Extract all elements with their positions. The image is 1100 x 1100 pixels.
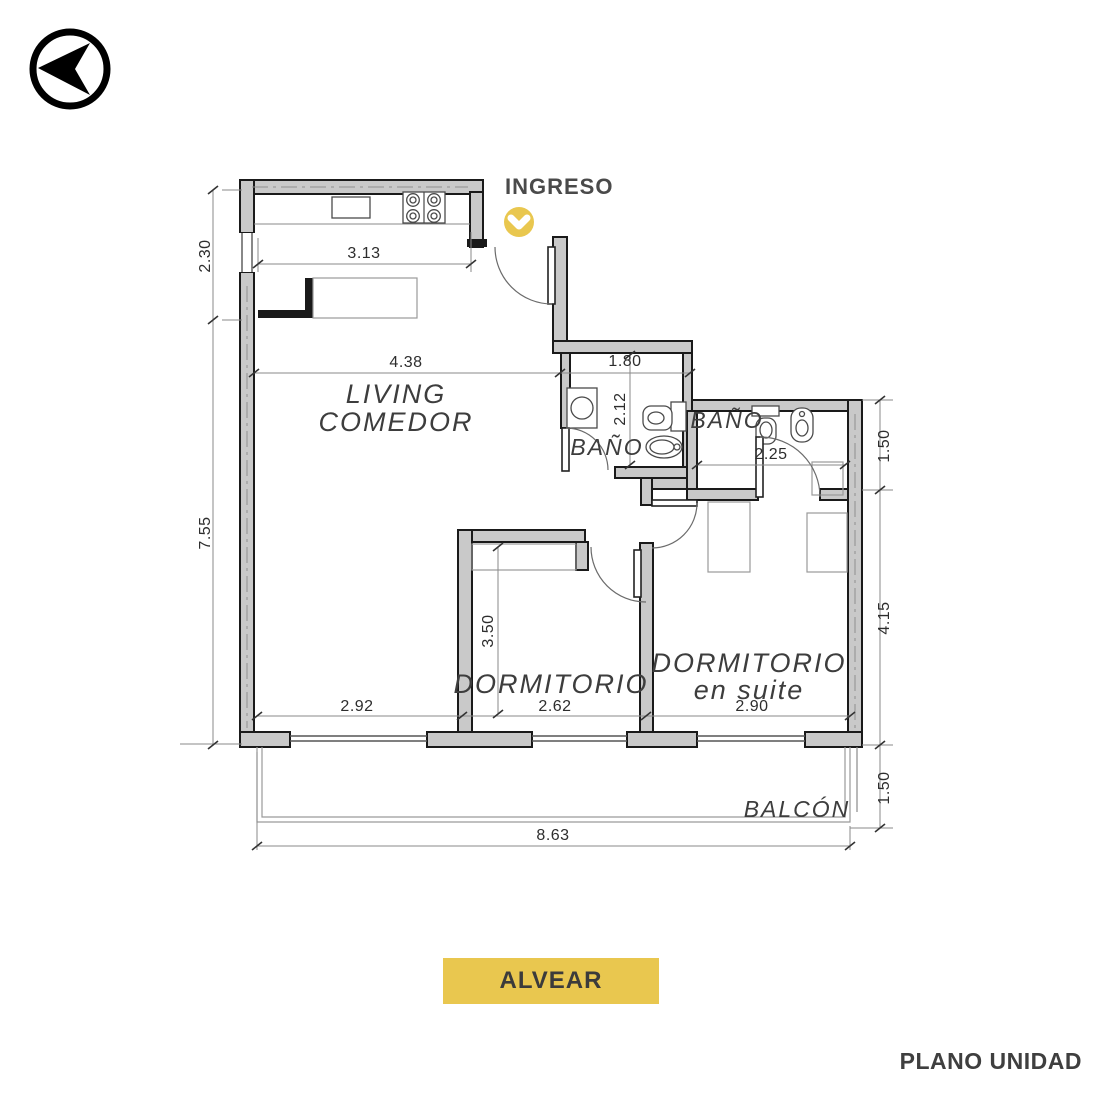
dim-bedroom1-depth: 3.50 bbox=[480, 614, 497, 647]
bedroom1-label: DORMITORIO bbox=[454, 669, 649, 699]
north-arrow-icon bbox=[33, 32, 107, 106]
bedroom1-closet bbox=[472, 544, 576, 570]
toilet-icon bbox=[643, 402, 686, 431]
floorplan-drawing: 2.30 7.55 3.13 4.38 1.80 2.12 2.25 1.50 … bbox=[0, 0, 1100, 1100]
building-name-button[interactable]: ALVEAR bbox=[443, 958, 659, 1004]
bedroom2-label-line2: en suite bbox=[694, 675, 805, 705]
dim-living-width: 4.38 bbox=[389, 354, 422, 371]
floorplan-page: 2.30 7.55 3.13 4.38 1.80 2.12 2.25 1.50 … bbox=[0, 0, 1100, 1100]
entry-label: INGRESO bbox=[505, 174, 613, 199]
bath2-label: BAÑO bbox=[690, 407, 763, 433]
entry-marker: INGRESO bbox=[504, 174, 613, 237]
plan-type-caption: PLANO UNIDAD bbox=[882, 1048, 1082, 1075]
dim-left-top: 2.30 bbox=[197, 239, 214, 272]
living-label-line1: LIVING bbox=[346, 379, 447, 409]
dim-left-main: 7.55 bbox=[197, 516, 214, 549]
bidet-icon bbox=[646, 436, 682, 458]
dim-right-balcony: 1.50 bbox=[876, 771, 893, 804]
stove-icon bbox=[403, 192, 445, 223]
hall-door bbox=[652, 500, 697, 548]
dim-living-bottom: 2.92 bbox=[340, 698, 373, 715]
washer-icon bbox=[567, 388, 597, 428]
bedroom2-label-line1: DORMITORIO bbox=[652, 648, 847, 678]
bottom-windows bbox=[290, 736, 805, 741]
dim-bath1-width: 1.80 bbox=[608, 353, 641, 370]
chevron-down-circle-icon bbox=[504, 207, 534, 237]
kitchen-island-counter bbox=[313, 278, 417, 318]
bath1-label: BAÑO bbox=[570, 434, 643, 460]
left-window bbox=[238, 233, 256, 272]
dim-bedroom1-width: 2.62 bbox=[538, 698, 571, 715]
bedroom2-wardrobe-1 bbox=[708, 502, 750, 572]
living-label-line2: COMEDOR bbox=[319, 407, 474, 437]
entry-door bbox=[495, 247, 555, 304]
dim-bath2-width: 2.25 bbox=[754, 446, 787, 463]
dimension-lines bbox=[180, 190, 893, 850]
bedroom1-door bbox=[591, 547, 646, 602]
kitchen-sink bbox=[332, 197, 370, 218]
dim-kitchen-width: 3.13 bbox=[347, 245, 380, 262]
balcony-label: BALCÓN bbox=[744, 796, 851, 822]
dim-right-main: 4.15 bbox=[876, 601, 893, 634]
dim-right-top: 1.50 bbox=[876, 429, 893, 462]
dim-total-width: 8.63 bbox=[536, 827, 569, 844]
bedroom2-wardrobe-2 bbox=[807, 513, 847, 572]
dim-bath1-depth: 2.12 bbox=[612, 392, 629, 425]
bidet-icon bbox=[791, 408, 813, 442]
